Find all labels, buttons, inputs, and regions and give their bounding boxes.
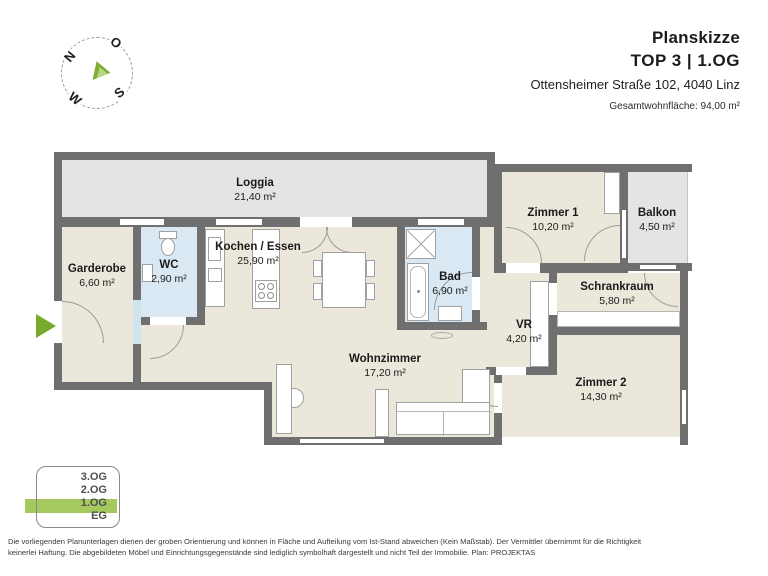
bad-washbasin-icon [438,306,462,321]
room-label-zimmer2: Zimmer 214,30 m² [541,376,661,405]
floor-item-2og[interactable]: 2.OG [37,484,119,497]
window-opening [418,219,464,225]
room-label-wohnzimmer: Wohnzimmer17,20 m² [325,352,445,381]
schrankraum-shelf [557,311,680,327]
wall-segment [54,152,495,160]
wall-segment [549,327,688,335]
window-opening [216,219,262,225]
disclaimer: Die vorliegenden Planunterlagen dienen d… [8,536,762,559]
wall-segment [472,310,480,330]
wall-segment [397,227,405,330]
room-label-vr: VR4,20 m² [484,318,564,347]
disclaimer-line-1: Die vorliegenden Planunterlagen dienen d… [8,536,762,547]
floor-item-3og[interactable]: 3.OG [37,471,119,484]
sofa-icon [396,402,490,435]
floor-item-1og[interactable]: 1.OG [37,497,119,510]
door-opening [506,263,540,273]
chair-icon [366,283,375,300]
door-opening [150,317,186,325]
wall-segment [494,164,628,172]
wall-segment [264,382,272,445]
room-label-kochen-essen: Kochen / Essen25,90 m² [198,240,318,269]
stove-icon [255,280,277,302]
oven-icon [208,268,222,282]
room-label-bad: Bad6,90 m² [412,270,488,299]
dining-table [322,252,366,308]
floor-item-eg[interactable]: EG [37,510,119,523]
glass-partition [133,300,141,344]
chair-icon [313,283,322,300]
entrance-arrow-icon [36,314,56,338]
room-label-schrankraum: Schrankraum5,80 m² [549,280,685,309]
shower-icon [406,229,436,259]
window-opening [300,439,384,443]
door-opening [496,367,526,375]
radiator-icon [431,332,453,339]
floor-selector: 3.OG 2.OG 1.OG EG [36,466,120,528]
room-label-loggia: Loggia21,40 m² [195,176,315,205]
window-opening [120,219,164,225]
sideboard [276,364,292,434]
room-label-garderobe: Garderobe6,60 m² [57,262,137,291]
wall-segment [620,164,692,172]
chair-icon [366,260,375,277]
toilet-icon [161,238,175,256]
room-label-zimmer1: Zimmer 110,20 m² [493,206,613,235]
wall-segment [54,382,272,390]
room-label-wc: WC2,90 m² [139,258,199,287]
sofa-chaise [462,369,490,405]
room-floor-garderobe [62,345,133,382]
room-label-balkon: Balkon4,50 m² [617,206,697,235]
disclaimer-line-2: keinerlei Haftung. Die abgebildeten Möbe… [8,547,762,558]
door-opening [300,217,352,227]
side-table [375,389,389,437]
window-opening [682,390,686,424]
window-opening [640,265,676,269]
